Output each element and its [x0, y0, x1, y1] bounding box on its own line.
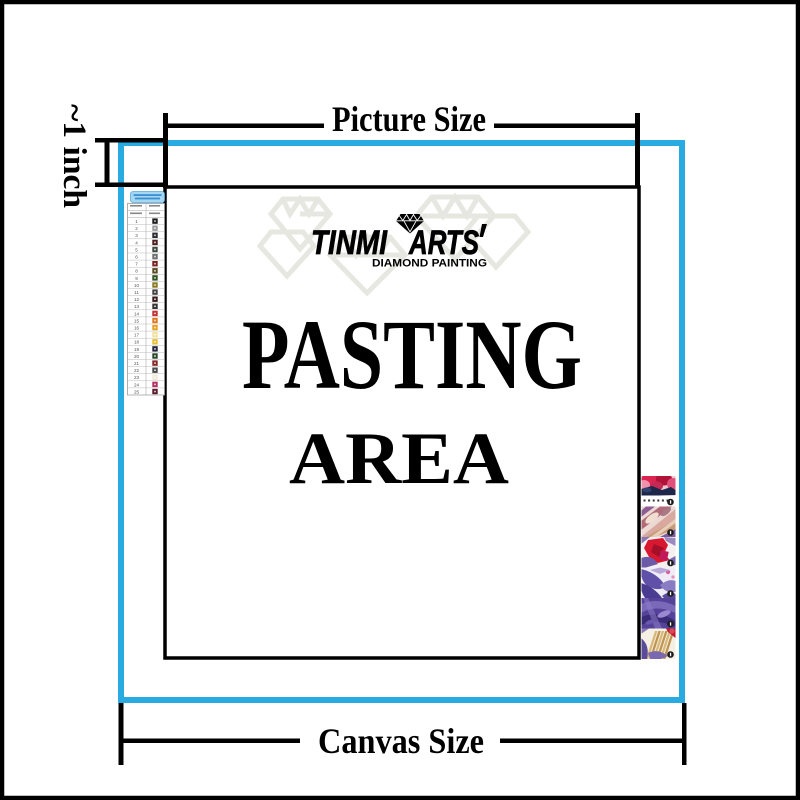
svg-text:ARTS: ARTS [408, 224, 479, 262]
svg-text:15: 15 [134, 318, 140, 323]
svg-text:7: 7 [135, 262, 138, 267]
svg-text:Picture Size: Picture Size [332, 99, 486, 139]
svg-text:8: 8 [135, 269, 138, 274]
svg-text:TINMI: TINMI [311, 224, 388, 262]
svg-text:DIAMOND PAINTING: DIAMOND PAINTING [372, 258, 487, 270]
svg-text:18: 18 [134, 340, 140, 345]
svg-text:AREA: AREA [289, 418, 509, 500]
svg-text:12: 12 [134, 297, 140, 302]
svg-text:25: 25 [134, 389, 140, 394]
svg-text:22: 22 [134, 368, 140, 373]
svg-text:24: 24 [134, 382, 140, 387]
svg-text:13: 13 [134, 304, 140, 309]
svg-text:9: 9 [135, 276, 138, 281]
svg-text:16: 16 [134, 326, 140, 331]
svg-text:3: 3 [135, 233, 138, 238]
svg-text:17: 17 [134, 333, 140, 338]
svg-text:Canvas Size: Canvas Size [318, 721, 484, 761]
svg-text:19: 19 [134, 347, 140, 352]
svg-text:1: 1 [135, 219, 138, 224]
svg-text:23: 23 [134, 375, 140, 380]
svg-text:21: 21 [134, 361, 140, 366]
svg-text:20: 20 [134, 354, 140, 359]
svg-text:~1 inch: ~1 inch [56, 104, 92, 208]
svg-text:5: 5 [135, 247, 138, 252]
svg-text:2: 2 [135, 226, 138, 231]
svg-text:4: 4 [135, 240, 138, 245]
svg-text:PASTING: PASTING [242, 299, 582, 410]
svg-text:10: 10 [134, 283, 140, 288]
svg-text:14: 14 [134, 311, 140, 316]
svg-text:11: 11 [134, 290, 139, 295]
svg-text:6: 6 [135, 255, 138, 260]
